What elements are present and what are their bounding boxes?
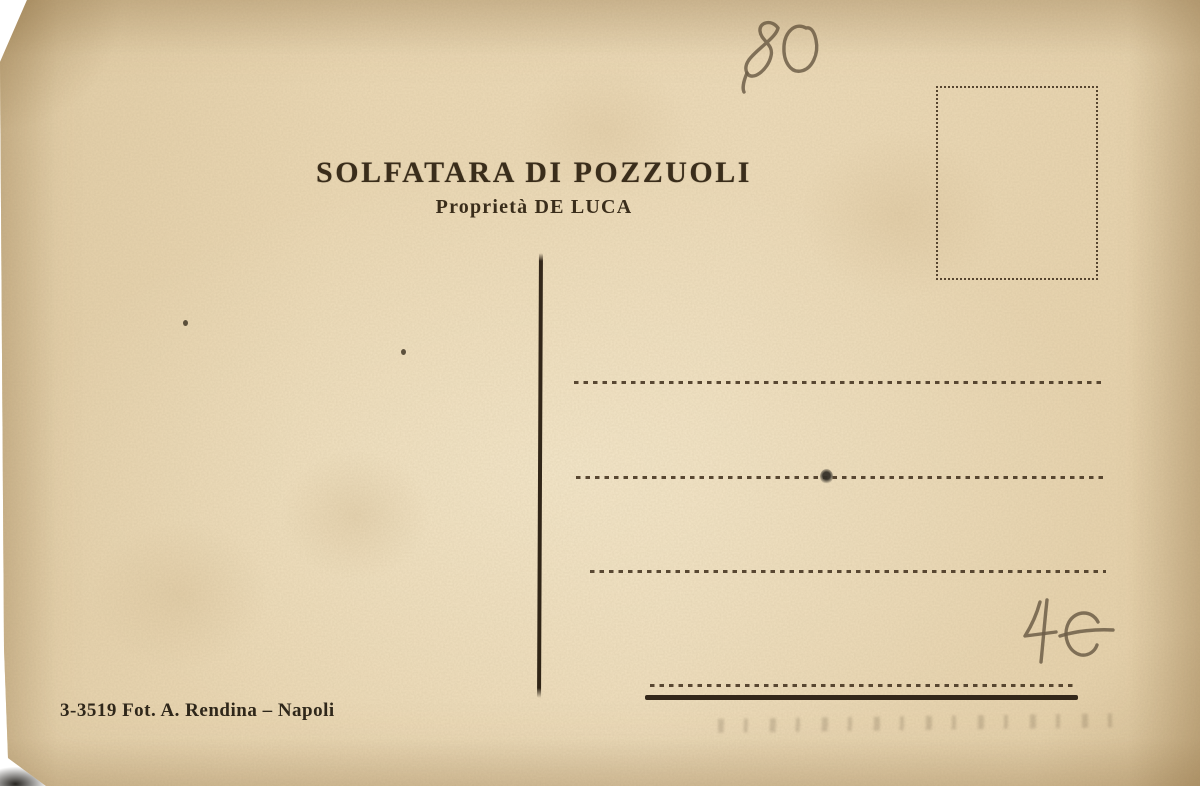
center-divider-line (537, 253, 542, 698)
paper-stain (90, 520, 270, 670)
address-line-2 (576, 476, 1108, 479)
paper-speck (401, 349, 406, 355)
paper-stain (280, 450, 430, 580)
handwritten-number-80: 80 (722, 16, 832, 111)
photographer-credit: 3-3519 Fot. A. Rendina – Napoli (60, 700, 335, 722)
postcard-back: SOLFATARA DI POZZUOLI Proprietà DE LUCA … (0, 0, 1200, 786)
bottom-rule-line (645, 695, 1078, 700)
stamp-box (936, 86, 1098, 280)
handwritten-price-4-euro: 4€ (1016, 594, 1116, 679)
ink-blot (820, 469, 833, 484)
address-line-4 (650, 684, 1074, 687)
pencil-80-drawing (722, 16, 832, 106)
postcard-subtitle: Proprietà DE LUCA (288, 196, 780, 219)
faint-pencil-marks (718, 713, 1128, 733)
postcard-title: SOLFATARA DI POZZUOLI (288, 157, 780, 189)
pencil-4-euro-drawing (1016, 594, 1116, 674)
address-line-3 (590, 570, 1106, 573)
paper-speck (183, 320, 188, 326)
postcard-header: SOLFATARA DI POZZUOLI Proprietà DE LUCA (288, 157, 780, 219)
address-line-1 (574, 381, 1106, 384)
